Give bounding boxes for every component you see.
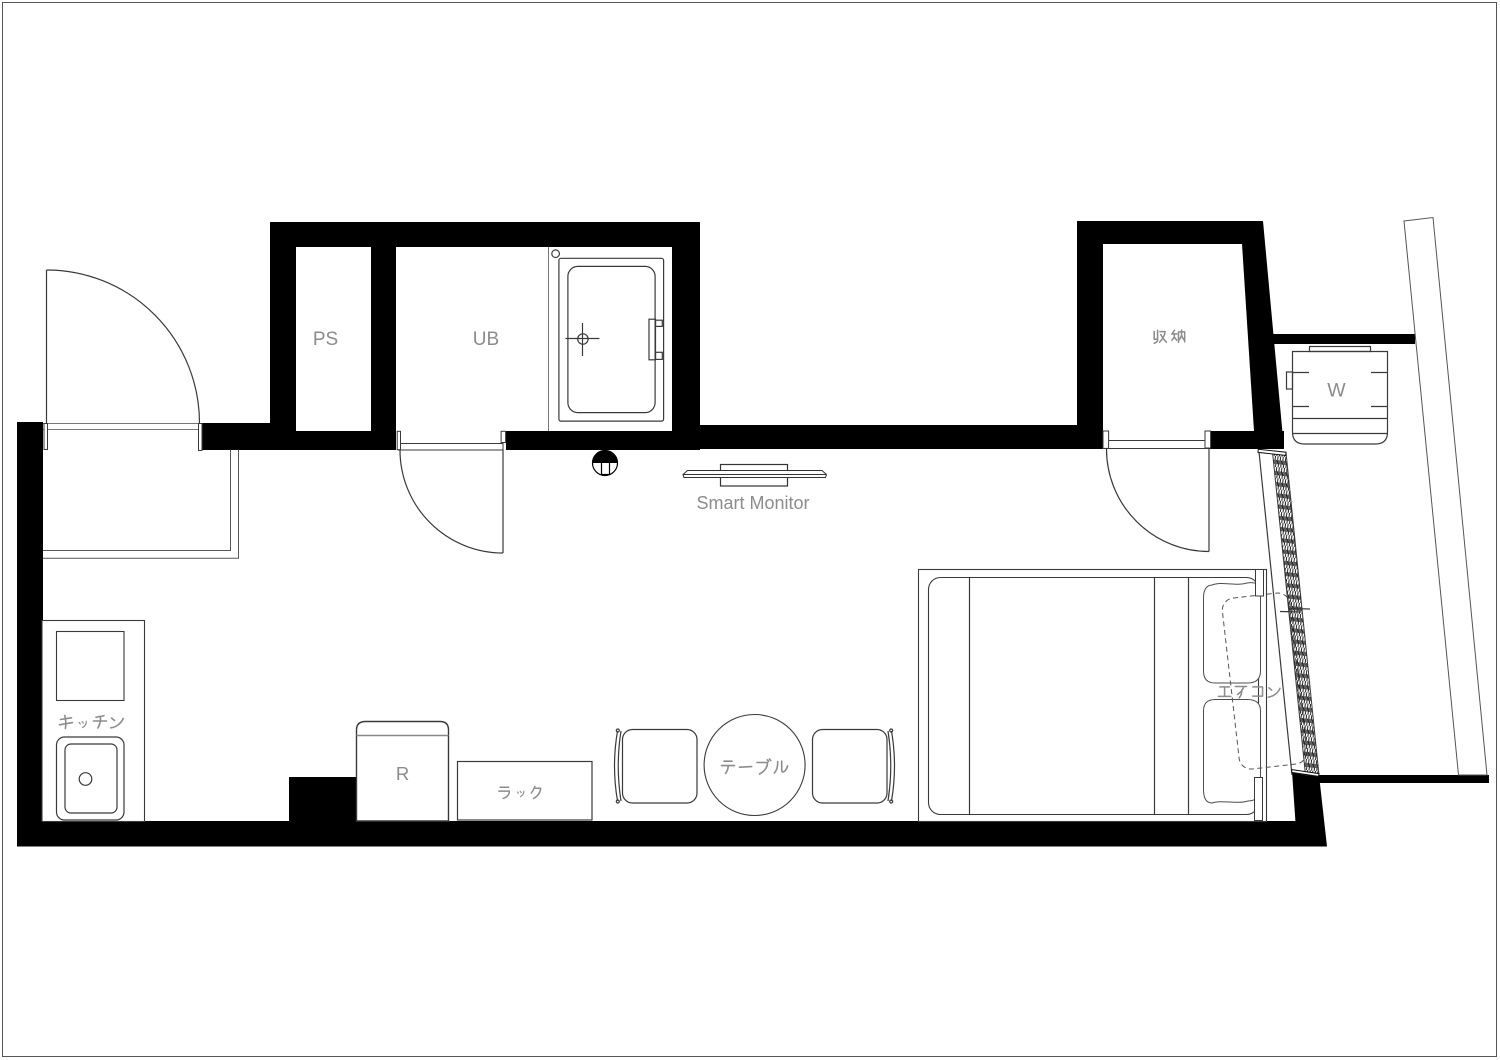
- svg-text:UB: UB: [473, 329, 499, 350]
- svg-text:R: R: [396, 763, 409, 784]
- svg-text:PS: PS: [313, 329, 338, 350]
- svg-text:Smart Monitor: Smart Monitor: [696, 493, 809, 513]
- svg-text:W: W: [1327, 380, 1346, 402]
